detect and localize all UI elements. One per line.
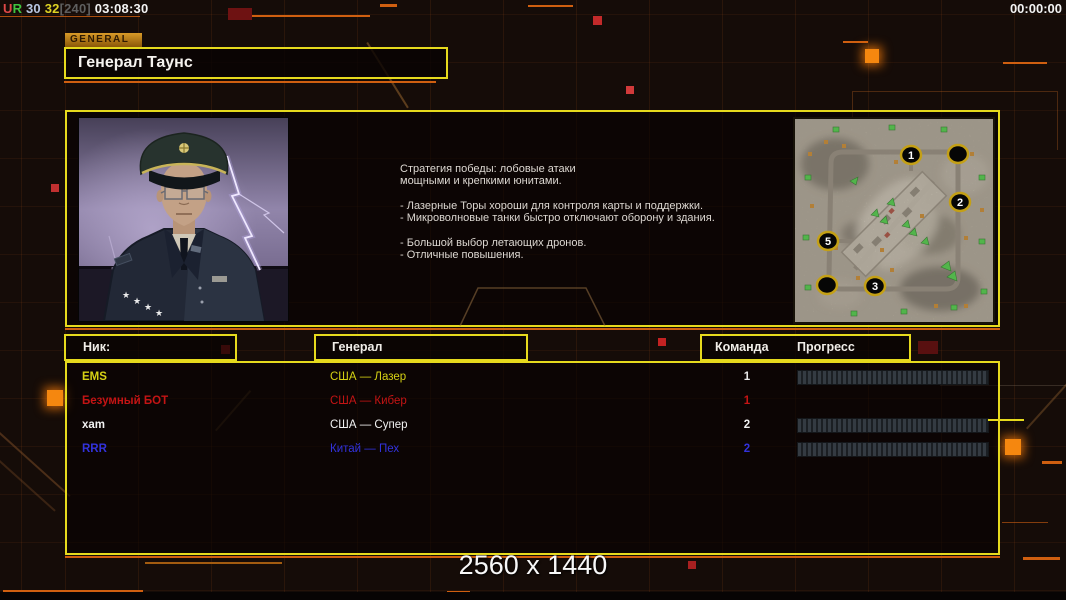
player-name: EMS xyxy=(82,365,107,389)
briefing-line: - Микроволновые танки быстро отключают о… xyxy=(400,212,795,224)
status-value-1: 30 xyxy=(26,1,41,16)
player-name: RRR xyxy=(82,437,107,461)
decor-diagonal xyxy=(1026,383,1066,429)
player-team: 1 xyxy=(737,389,757,413)
briefing-line: - Лазерные Торы хороши для контроля карт… xyxy=(400,200,795,212)
player-row: xam США — Супер 2 xyxy=(65,413,996,437)
decor-line xyxy=(1002,522,1048,523)
decor-square xyxy=(658,338,666,346)
elapsed-time: 03:08:30 xyxy=(95,1,149,16)
svg-text:3: 3 xyxy=(872,281,878,293)
decor-glow-square xyxy=(1005,439,1021,455)
start-position-5: 5 xyxy=(818,232,838,250)
player-list: EMS США — Лазер 1 Безумный БОТ США — Киб… xyxy=(65,361,996,461)
player-general: США — Супер xyxy=(330,413,407,437)
general-briefing: Стратегия победы: лобовые атаки мощными … xyxy=(400,163,795,261)
officer-cap xyxy=(140,133,227,190)
header-general: Генерал xyxy=(314,334,528,361)
status-value-2: 32 xyxy=(45,1,60,16)
start-position-empty-tr xyxy=(948,145,968,163)
bottom-black-strip xyxy=(0,592,1066,600)
header-nick: Ник: xyxy=(64,334,237,361)
player-progress-bar xyxy=(797,370,989,385)
player-general: США — Кибер xyxy=(330,389,407,413)
panel-accent-line xyxy=(65,328,1000,330)
decor-pointer-line xyxy=(988,419,1024,421)
decor-line xyxy=(0,16,140,17)
decor-trapezoid xyxy=(450,283,615,327)
start-position-3: 3 xyxy=(865,277,885,295)
decor-line xyxy=(145,562,282,564)
start-position-2: 2 xyxy=(950,193,970,211)
screen: { "colors": { "accent_yellow": "#e6da1d"… xyxy=(0,0,1066,600)
player-row: RRR Китай — Пех 2 xyxy=(65,437,996,461)
player-name: xam xyxy=(82,413,105,437)
briefing-line: Стратегия победы: лобовые атаки xyxy=(400,163,795,175)
decor-glow-square xyxy=(47,390,63,406)
status-u: U xyxy=(3,1,13,16)
decor-line xyxy=(1023,557,1060,560)
general-portrait: ★★ ★★ xyxy=(78,117,289,322)
decor-square xyxy=(593,16,602,25)
decor-square xyxy=(626,86,634,94)
status-value-3: [240] xyxy=(60,1,91,16)
decor-line xyxy=(1042,461,1062,464)
player-general: Китай — Пех xyxy=(330,437,399,461)
header-progress-label: Прогресс xyxy=(797,336,855,359)
svg-text:★: ★ xyxy=(122,291,130,301)
decor-line xyxy=(843,41,868,43)
briefing-line: - Большой выбор летающих дронов. xyxy=(400,237,795,249)
start-position-1: 1 xyxy=(901,146,921,164)
decor-glow-square xyxy=(865,49,879,63)
player-name: Безумный БОТ xyxy=(82,389,168,413)
player-team: 2 xyxy=(737,437,757,461)
status-r: R xyxy=(13,1,23,16)
general-name-title: Генерал Таунс xyxy=(64,47,448,79)
player-row: Безумный БОТ США — Кибер 1 xyxy=(65,389,996,413)
network-status-bar: UR 30 32[240] 03:08:30 xyxy=(3,1,148,16)
start-position-empty-bl xyxy=(817,276,837,294)
decor-square xyxy=(688,561,696,569)
general-tab: GENERAL xyxy=(65,33,142,47)
title-accent-line xyxy=(64,81,436,83)
decor-diagonal xyxy=(0,460,56,512)
player-progress-bar xyxy=(797,418,989,433)
player-team: 1 xyxy=(737,365,757,389)
decor-diagonal xyxy=(0,432,71,497)
briefing-line xyxy=(400,188,795,200)
header-team-label: Команда xyxy=(715,336,769,359)
decor-line xyxy=(1003,62,1047,64)
header-team-progress: Команда Прогресс xyxy=(700,334,911,361)
decor-line xyxy=(528,5,573,7)
map-image: 1 2 5 3 xyxy=(795,119,993,322)
svg-text:★: ★ xyxy=(155,309,163,319)
svg-text:1: 1 xyxy=(908,150,914,162)
player-row: EMS США — Лазер 1 xyxy=(65,365,996,389)
briefing-line: мощными и крепкими юнитами. xyxy=(400,175,795,187)
briefing-line: - Отличные повышения. xyxy=(400,249,795,261)
player-progress-bar xyxy=(797,442,989,457)
player-team: 2 xyxy=(737,413,757,437)
decor-square xyxy=(51,184,59,192)
game-timer: 00:00:00 xyxy=(1010,1,1062,16)
svg-text:★: ★ xyxy=(144,303,152,313)
decor-square xyxy=(918,341,938,354)
svg-text:2: 2 xyxy=(957,197,963,209)
player-general: США — Лазер xyxy=(330,365,406,389)
svg-text:★: ★ xyxy=(133,297,141,307)
decor-square xyxy=(228,8,252,20)
resolution-watermark: 2560 x 1440 xyxy=(459,550,608,581)
svg-text:5: 5 xyxy=(825,236,831,248)
briefing-line xyxy=(400,224,795,236)
map-preview: 1 2 5 3 xyxy=(793,117,995,324)
decor-line xyxy=(380,4,397,7)
portrait-image: ★★ ★★ xyxy=(79,118,288,321)
